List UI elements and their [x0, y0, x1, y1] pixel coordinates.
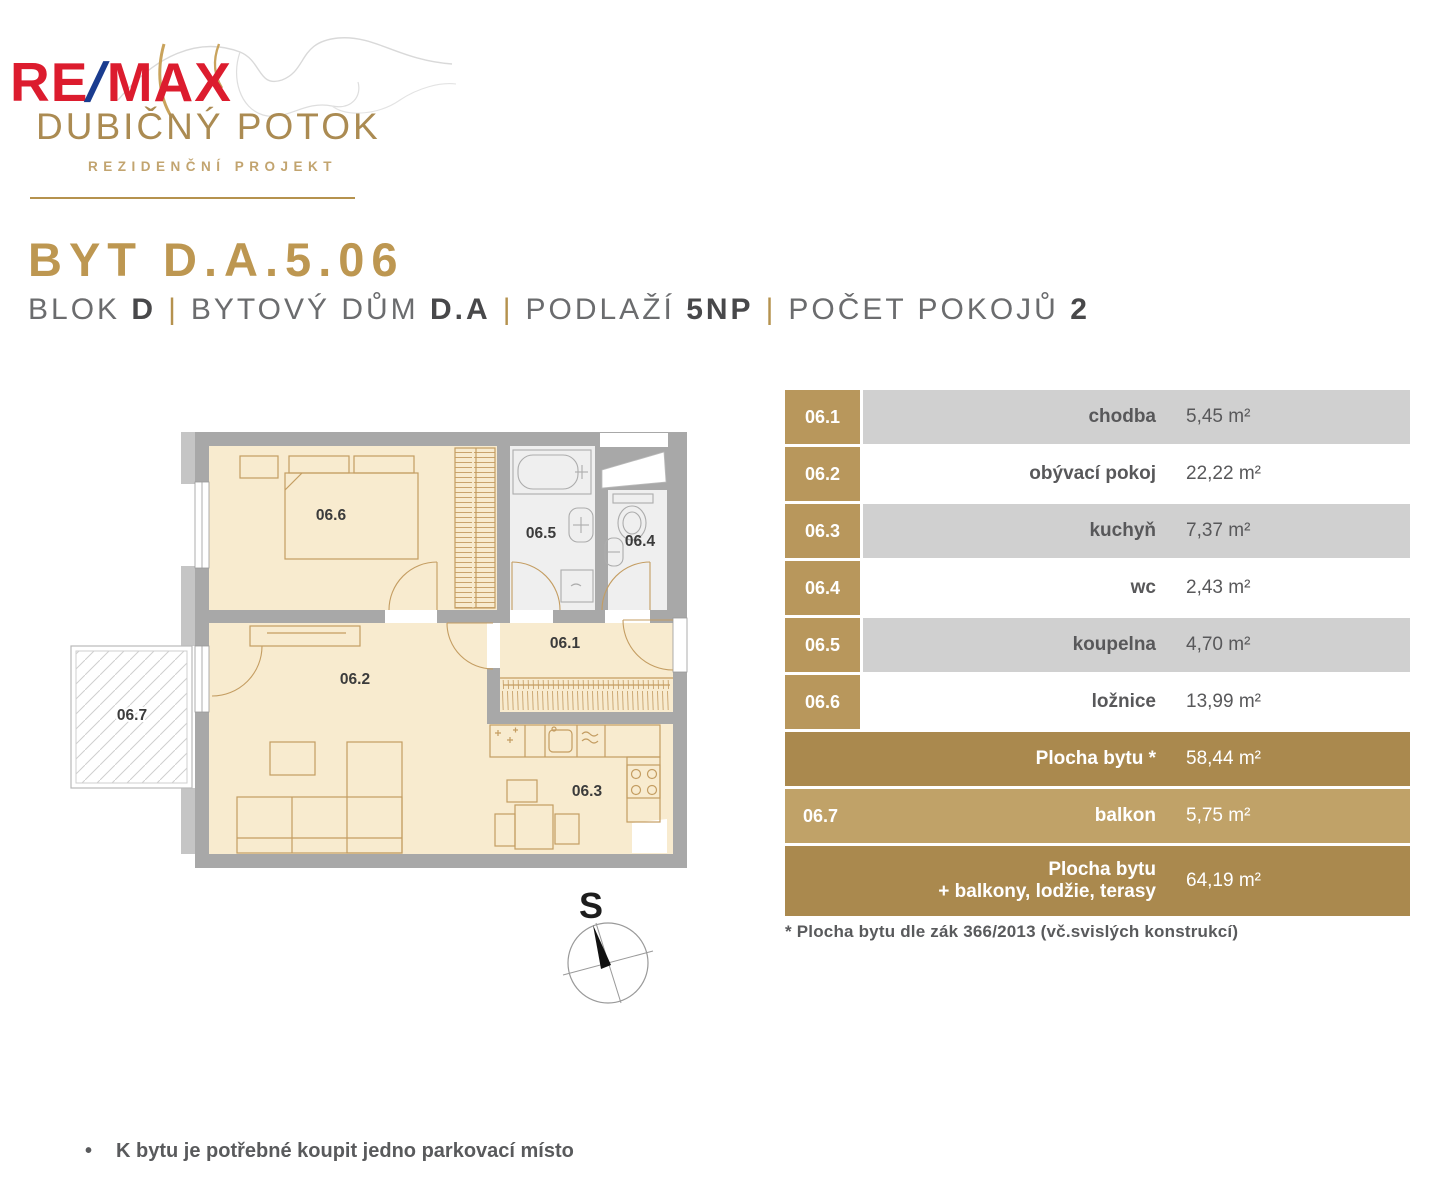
- room-label-06-1: 06.1: [550, 635, 581, 652]
- summary-name: Plocha bytu+ balkony, lodžie, terasy: [785, 859, 1156, 903]
- floorplan-drawing: 06.1 06.2 06.3 06.4 06.5 06.6 06.7 S: [55, 420, 715, 1040]
- project-tagline: REZIDENČNÍ PROJEKT: [88, 159, 337, 174]
- room-label-06-7: 06.7: [117, 707, 147, 724]
- room-detail-cell: kuchyň7,37 m²: [863, 504, 1410, 558]
- parking-note-text: K bytu je potřebné koupit jedno parkovac…: [116, 1140, 574, 1163]
- room-detail-cell: chodba5,45 m²: [863, 390, 1410, 444]
- room-number-cell: 06.6: [785, 675, 860, 729]
- subtitle-value-dum: D.A: [430, 293, 491, 326]
- subtitle-label-dum: BYTOVÝ DŮM: [191, 293, 419, 326]
- gold-divider: [30, 197, 355, 199]
- area-table-row: 06.3kuchyň7,37 m²: [785, 504, 1410, 558]
- room-name: wc: [863, 577, 1156, 599]
- bullet-icon: •: [85, 1140, 92, 1163]
- area-table-row: 06.2obývací pokoj22,22 m²: [785, 447, 1410, 501]
- project-name: DUBIČNÝ POTOK: [36, 106, 381, 148]
- room-area: 7,37 m²: [1156, 520, 1410, 542]
- room-name: ložnice: [863, 691, 1156, 713]
- compass-icon: S: [563, 885, 653, 1003]
- room-number-cell: 06.4: [785, 561, 860, 615]
- subtitle-separator: |: [491, 293, 526, 326]
- room-label-06-2: 06.2: [340, 671, 370, 688]
- area-table-row: 06.1chodba5,45 m²: [785, 390, 1410, 444]
- summary-row: Plocha bytu *58,44 m²: [785, 732, 1410, 786]
- apartment-subtitle: BLOK D|BYTOVÝ DŮM D.A|PODLAŽÍ 5NP|POČET …: [28, 293, 1090, 327]
- apartment-title: BYT D.A.5.06: [28, 232, 405, 287]
- room-name: obývací pokoj: [863, 463, 1156, 485]
- subtitle-separator: |: [156, 293, 191, 326]
- room-area: 13,99 m²: [1156, 691, 1410, 713]
- compass-north-label: S: [579, 885, 603, 926]
- area-table-row: 06.4wc2,43 m²: [785, 561, 1410, 615]
- summary-name: Plocha bytu *: [785, 748, 1156, 770]
- room-number-cell: 06.1: [785, 390, 860, 444]
- room-number-cell: 06.2: [785, 447, 860, 501]
- subtitle-label-podlazi: PODLAŽÍ: [525, 293, 674, 326]
- subtitle-value-podlazi: 5NP: [686, 293, 753, 326]
- room-detail-cell: ložnice13,99 m²: [863, 675, 1410, 729]
- summary-row: 06.7balkon5,75 m²: [785, 789, 1410, 843]
- subtitle-separator: |: [754, 293, 789, 326]
- area-footnote: * Plocha bytu dle zák 366/2013 (vč.svisl…: [785, 922, 1238, 942]
- summary-area: 64,19 m²: [1156, 870, 1410, 892]
- room-label-06-4: 06.4: [625, 533, 656, 550]
- room-number-label: 06.7: [803, 806, 838, 827]
- room-name: chodba: [863, 406, 1156, 428]
- room-area: 22,22 m²: [1156, 463, 1410, 485]
- remax-logo: RE/MAX: [10, 50, 232, 114]
- summary-name: balkon: [785, 805, 1156, 827]
- area-table-summary: Plocha bytu *58,44 m²06.7balkon5,75 m²Pl…: [785, 732, 1410, 916]
- subtitle-value-pokoje: 2: [1070, 293, 1090, 326]
- subtitle-label-blok: BLOK: [28, 293, 120, 326]
- room-detail-cell: obývací pokoj22,22 m²: [863, 447, 1410, 501]
- room-area: 2,43 m²: [1156, 577, 1410, 599]
- floorplan-sheet: { "brand": { "remax_re": "RE", "remax_sl…: [0, 0, 1440, 1200]
- room-detail-cell: wc2,43 m²: [863, 561, 1410, 615]
- subtitle-label-pokoje: POČET POKOJŮ: [788, 293, 1059, 326]
- remax-logo-re: RE: [10, 51, 88, 113]
- parking-note: • K bytu je potřebné koupit jedno parkov…: [85, 1140, 574, 1163]
- area-table-row: 06.6ložnice13,99 m²: [785, 675, 1410, 729]
- room-number-cell: 06.3: [785, 504, 860, 558]
- area-table-row: 06.5koupelna4,70 m²: [785, 618, 1410, 672]
- room-name: koupelna: [863, 634, 1156, 656]
- room-name: kuchyň: [863, 520, 1156, 542]
- summary-area: 58,44 m²: [1156, 748, 1410, 770]
- summary-row: Plocha bytu+ balkony, lodžie, terasy64,1…: [785, 846, 1410, 916]
- room-number-cell: 06.5: [785, 618, 860, 672]
- room-area: 4,70 m²: [1156, 634, 1410, 656]
- remax-logo-max: MAX: [107, 51, 232, 113]
- room-label-06-5: 06.5: [526, 525, 557, 542]
- subtitle-value-blok: D: [131, 293, 156, 326]
- room-label-06-3: 06.3: [572, 783, 603, 800]
- area-table: 06.1chodba5,45 m²06.2obývací pokoj22,22 …: [785, 390, 1410, 919]
- room-detail-cell: koupelna4,70 m²: [863, 618, 1410, 672]
- area-table-rows: 06.1chodba5,45 m²06.2obývací pokoj22,22 …: [785, 390, 1410, 729]
- room-label-06-6: 06.6: [316, 507, 347, 524]
- summary-area: 5,75 m²: [1156, 805, 1410, 827]
- room-area: 5,45 m²: [1156, 406, 1410, 428]
